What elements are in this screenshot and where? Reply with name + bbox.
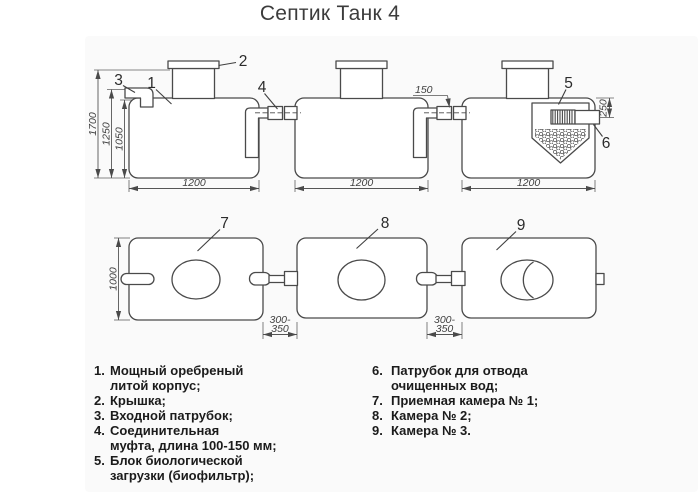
legend-item-number: 8. xyxy=(372,408,391,423)
legend-item-4: 4. Соединительнаямуфта, длина 100-150 мм… xyxy=(94,423,354,453)
tank-2-body xyxy=(295,98,428,178)
chamber-3-plan xyxy=(462,238,596,318)
callout-9: 9 xyxy=(517,217,526,234)
septic-tank-diagram-page: Септик Танк 4 xyxy=(0,0,700,496)
tank-2-lid xyxy=(336,61,387,99)
dim-total-height: 1700 xyxy=(87,112,99,136)
legend-item-5: 5. Блок биологическойзагрузки (биофильтр… xyxy=(94,453,354,483)
chamber-2-plan xyxy=(297,238,427,318)
legend-item-text: Крышка; xyxy=(110,393,354,408)
technical-drawing: 1700 1250 1050 1200 1200 1200 150 250 1 … xyxy=(0,0,700,352)
legend-item-text: Блок биологическойзагрузки (биофильтр); xyxy=(110,453,354,483)
plan-outlet-stub xyxy=(596,274,604,285)
legend-item-text: Приемная камера № 1; xyxy=(391,393,652,408)
callout-2: 2 xyxy=(239,53,248,70)
callout-1: 1 xyxy=(147,75,156,92)
dim-inner-height: 1050 xyxy=(114,127,126,151)
legend-item-text: Соединительнаямуфта, длина 100-150 мм; xyxy=(110,423,354,453)
dim-tank3-width: 1200 xyxy=(517,177,541,189)
dim-gap1-line2: 350 xyxy=(271,323,289,335)
legend-item-8: 8. Камера № 2; xyxy=(372,408,652,423)
dim-tank2-width: 1200 xyxy=(350,177,374,189)
legend-item-7: 7. Приемная камера № 1; xyxy=(372,393,652,408)
dim-tank1-width: 1200 xyxy=(182,177,206,189)
legend-item-text: Камера № 2; xyxy=(391,408,652,423)
side-view xyxy=(94,61,614,192)
legend-item-number: 4. xyxy=(94,423,110,453)
tank-3-lid xyxy=(502,61,553,99)
legend-item-2: 2. Крышка; xyxy=(94,393,354,408)
legend-item-1: 1. Мощный оребреныйлитой корпус; xyxy=(94,363,354,393)
ribbed-pipe xyxy=(551,110,575,124)
outlet-pipe xyxy=(575,111,600,125)
legend-item-number: 1. xyxy=(94,363,110,393)
legend-item-text: Камера № 3. xyxy=(391,423,652,438)
coupling-1-2 xyxy=(246,107,302,158)
legend-item-3: 3. Входной патрубок; xyxy=(94,408,354,423)
legend-item-number: 5. xyxy=(94,453,110,483)
dim-outlet-height: 250 xyxy=(598,99,610,118)
plan-connector-1-2 xyxy=(250,272,298,286)
callout-6: 6 xyxy=(602,135,611,152)
legend-item-6: 6. Патрубок для отводаочищенных вод; xyxy=(372,363,652,393)
legend-item-number: 9. xyxy=(372,423,391,438)
tank-1-body xyxy=(129,98,259,178)
callout-8: 8 xyxy=(381,215,390,232)
legend-item-text: Мощный оребреныйлитой корпус; xyxy=(110,363,354,393)
dim-body-width: 1000 xyxy=(108,267,120,291)
dim-inlet-height: 1250 xyxy=(101,122,113,146)
callout-7: 7 xyxy=(220,215,229,232)
plan-inlet-stub xyxy=(121,274,154,285)
tank-1-lid xyxy=(168,61,219,99)
legend-item-number: 7. xyxy=(372,393,391,408)
legend-item-number: 2. xyxy=(94,393,110,408)
callout-5: 5 xyxy=(564,75,573,92)
legend-item-text: Входной патрубок; xyxy=(110,408,354,423)
plan-connector-2-3 xyxy=(417,272,466,286)
legend-item-9: 9. Камера № 3. xyxy=(372,423,652,438)
top-view xyxy=(114,229,604,339)
legend-item-number: 3. xyxy=(94,408,110,423)
legend-right-column: 6. Патрубок для отводаочищенных вод; 7. … xyxy=(372,363,652,438)
legend-item-number: 6. xyxy=(372,363,391,393)
legend-left-column: 1. Мощный оребреныйлитой корпус; 2. Крыш… xyxy=(94,363,354,483)
dim-coupling-length: 150 xyxy=(415,84,433,96)
callout-4: 4 xyxy=(258,79,267,96)
legend-item-text: Патрубок для отводаочищенных вод; xyxy=(391,363,652,393)
dim-gap2-line2: 350 xyxy=(436,323,454,335)
callout-3: 3 xyxy=(114,72,123,89)
